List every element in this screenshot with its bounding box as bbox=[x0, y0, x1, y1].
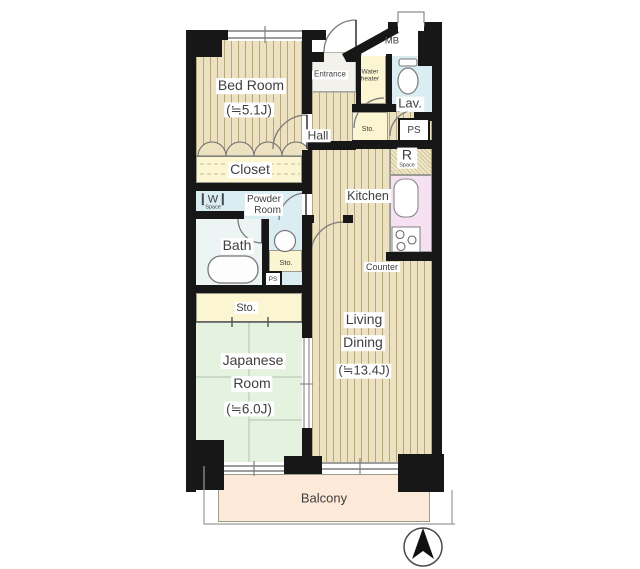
fridge-space-label: R Space bbox=[397, 148, 417, 169]
living-dining-size: (≒13.4J) bbox=[336, 364, 391, 379]
bed-room-label: Bed Room bbox=[216, 78, 286, 94]
japanese-room-label-1: Japanese bbox=[221, 353, 286, 369]
meter-box-door-gap bbox=[398, 23, 424, 31]
north-arrow-icon bbox=[404, 528, 442, 566]
bath-label: Bath bbox=[221, 238, 254, 254]
water-heater-label: Water heater bbox=[361, 69, 379, 84]
plan-openings-layer bbox=[0, 0, 640, 569]
balcony-label: Balcony bbox=[301, 492, 347, 507]
living-dining-label-2: Dining bbox=[341, 335, 385, 351]
hall-label: Hall bbox=[306, 129, 331, 142]
japanese-room-size: (≒6.0J) bbox=[224, 401, 274, 416]
closet-label: Closet bbox=[228, 162, 272, 178]
bedroom-window bbox=[228, 26, 302, 43]
entrance-label: Entrance bbox=[312, 71, 348, 80]
fridge-space-symbol: R bbox=[399, 148, 415, 164]
living-dining-label-1: Living bbox=[344, 312, 385, 328]
fridge-space-sub: Space bbox=[399, 162, 415, 168]
powder-room-label: Powder Room bbox=[245, 194, 283, 216]
storage-tiny-label: Sto. bbox=[362, 126, 374, 134]
floor-plan: PS PS bbox=[0, 0, 640, 569]
storage-mid-label: Sto. bbox=[279, 259, 292, 267]
meter-box-label: MB bbox=[385, 37, 399, 48]
kitchen-label: Kitchen bbox=[345, 189, 391, 203]
japanese-room-label-2: Room bbox=[231, 376, 272, 392]
japanese-room-window bbox=[224, 461, 284, 476]
living-window bbox=[322, 458, 398, 474]
counter-label: Counter bbox=[364, 262, 400, 272]
lavatory-label: Lav. bbox=[396, 97, 424, 112]
washer-space-label: W Space bbox=[202, 193, 224, 210]
storage-big-label: Sto. bbox=[234, 302, 258, 314]
bed-room-size: (≒5.1J) bbox=[224, 102, 274, 117]
